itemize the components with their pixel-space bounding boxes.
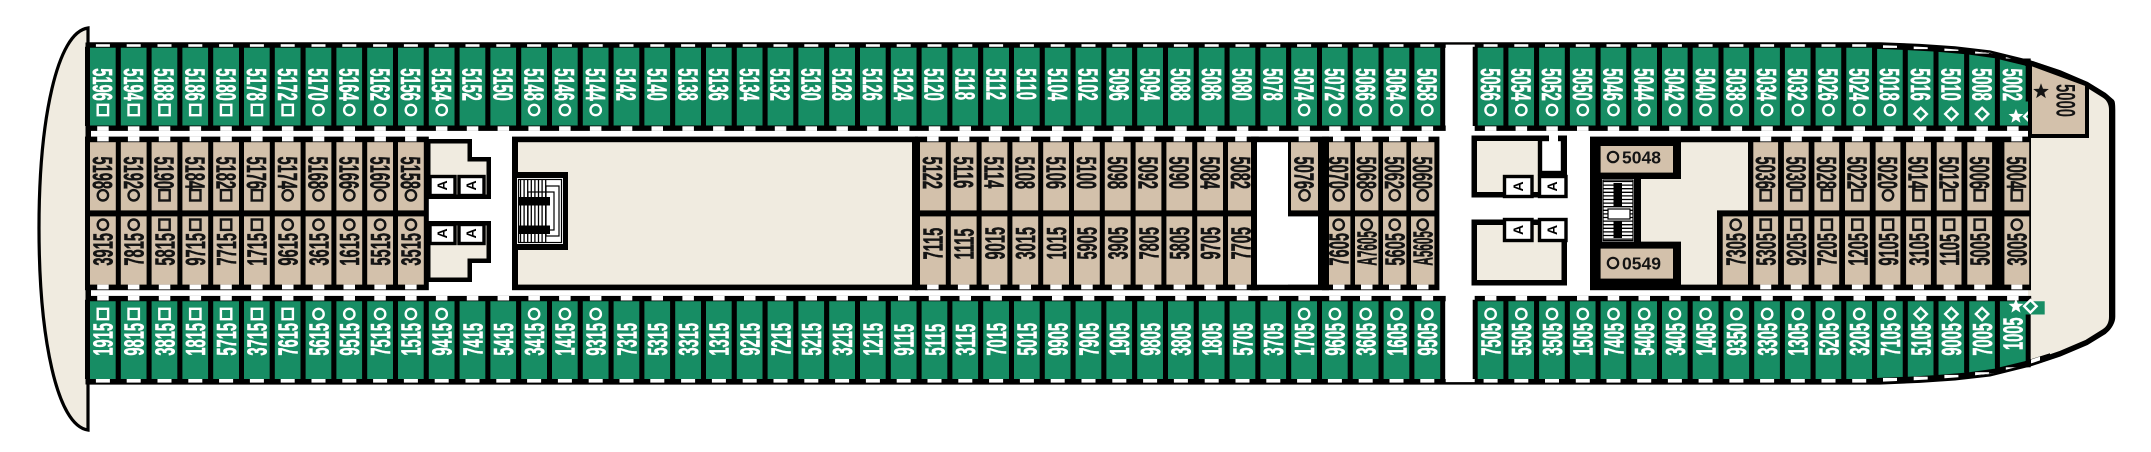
svg-text:3015: 3015 [1010, 227, 1041, 260]
svg-text:9815: 9815 [119, 323, 150, 356]
svg-text:5188: 5188 [148, 68, 179, 101]
svg-text:5160: 5160 [364, 157, 395, 190]
svg-text:5058: 5058 [1411, 68, 1442, 101]
svg-text:5126: 5126 [857, 68, 888, 101]
svg-text:1305: 1305 [1783, 323, 1814, 356]
svg-text:5050: 5050 [1567, 68, 1598, 101]
svg-text:3605: 3605 [1351, 323, 1382, 356]
svg-text:5180: 5180 [210, 68, 241, 101]
svg-text:1405: 1405 [1691, 323, 1722, 356]
svg-text:A: A [1544, 181, 1560, 191]
svg-text:5176: 5176 [241, 157, 272, 190]
svg-text:5615: 5615 [303, 323, 334, 356]
svg-text:9505: 9505 [1412, 323, 1443, 356]
svg-text:5130: 5130 [795, 68, 826, 101]
svg-text:1815: 1815 [180, 323, 211, 356]
svg-text:9715: 9715 [180, 233, 211, 266]
svg-text:5090: 5090 [1163, 157, 1194, 190]
svg-text:5182: 5182 [210, 157, 241, 190]
svg-text:5092: 5092 [1132, 157, 1163, 190]
svg-text:9705: 9705 [1195, 227, 1226, 260]
svg-text:5100: 5100 [1071, 157, 1102, 190]
svg-text:0549: 0549 [1622, 254, 1661, 274]
svg-text:5024: 5024 [1843, 68, 1874, 101]
svg-text:5146: 5146 [549, 68, 580, 101]
svg-text:5010: 5010 [1935, 68, 1966, 101]
svg-text:5178: 5178 [241, 68, 272, 101]
svg-text:5088: 5088 [1165, 68, 1196, 101]
svg-text:7005: 7005 [1967, 323, 1998, 356]
svg-text:5190: 5190 [148, 157, 179, 190]
svg-text:3305: 3305 [1752, 323, 1783, 356]
svg-text:1205: 1205 [1842, 233, 1873, 266]
svg-text:7805: 7805 [1133, 227, 1164, 260]
svg-text:3515: 3515 [396, 233, 427, 266]
svg-text:5078: 5078 [1257, 68, 1288, 101]
svg-text:5096: 5096 [1103, 68, 1134, 101]
svg-text:5138: 5138 [672, 68, 703, 101]
svg-text:5064: 5064 [1380, 68, 1411, 101]
svg-text:7215: 7215 [765, 323, 796, 356]
svg-text:5006: 5006 [1964, 157, 1995, 190]
svg-text:5046: 5046 [1597, 68, 1628, 101]
svg-text:5154: 5154 [426, 68, 457, 101]
svg-text:9415: 9415 [427, 323, 458, 356]
svg-text:5020: 5020 [1872, 157, 1903, 190]
svg-text:5162: 5162 [364, 68, 395, 101]
svg-text:9105: 9105 [1873, 233, 1904, 266]
svg-text:5106: 5106 [1040, 157, 1071, 190]
svg-text:5054: 5054 [1505, 68, 1536, 101]
svg-text:5152: 5152 [456, 68, 487, 101]
svg-text:1805: 1805 [1197, 323, 1228, 356]
svg-text:3715: 3715 [242, 323, 273, 356]
svg-text:5174: 5174 [272, 157, 303, 190]
svg-text:1705: 1705 [1289, 323, 1320, 356]
svg-text:9905: 9905 [1043, 323, 1074, 356]
svg-text:5115: 5115 [919, 324, 950, 356]
svg-text:A: A [434, 180, 450, 190]
svg-text:5004: 5004 [2001, 157, 2032, 190]
svg-text:5166: 5166 [333, 157, 364, 190]
svg-text:5044: 5044 [1628, 68, 1659, 101]
svg-text:7205: 7205 [1812, 233, 1843, 266]
svg-text:A7605: A7605 [1353, 231, 1383, 266]
svg-text:5156: 5156 [395, 68, 426, 101]
svg-text:5405: 5405 [1629, 323, 1660, 356]
svg-text:3005: 3005 [2002, 233, 2033, 266]
svg-text:9805: 9805 [1135, 323, 1166, 356]
svg-text:5028: 5028 [1811, 157, 1842, 190]
svg-text:5034: 5034 [1751, 68, 1782, 101]
svg-text:5140: 5140 [641, 68, 672, 101]
svg-text:1315: 1315 [704, 323, 735, 356]
svg-text:9205: 9205 [1781, 233, 1812, 266]
svg-text:5120: 5120 [918, 68, 949, 101]
svg-text:5066: 5066 [1350, 68, 1381, 101]
svg-text:5060: 5060 [1407, 157, 1438, 190]
svg-text:5186: 5186 [179, 68, 210, 101]
svg-text:9605: 9605 [1320, 323, 1351, 356]
svg-text:5042: 5042 [1659, 68, 1690, 101]
svg-text:A: A [1544, 225, 1560, 235]
svg-text:5158: 5158 [395, 157, 426, 190]
svg-text:3105: 3105 [1903, 233, 1934, 266]
svg-text:3805: 3805 [1166, 323, 1197, 356]
svg-text:5122: 5122 [917, 157, 948, 190]
svg-text:5005: 5005 [1965, 233, 1996, 266]
svg-text:3505: 3505 [1537, 323, 1568, 356]
svg-text:5108: 5108 [1009, 157, 1040, 190]
svg-text:5018: 5018 [1874, 68, 1905, 101]
svg-text:5196: 5196 [87, 68, 118, 101]
svg-text:5715: 5715 [211, 323, 242, 356]
svg-text:5104: 5104 [1042, 68, 1073, 101]
svg-text:7815: 7815 [119, 233, 150, 266]
svg-text:3905: 3905 [1103, 227, 1134, 260]
svg-text:5144: 5144 [580, 68, 611, 101]
svg-text:5705: 5705 [1227, 323, 1258, 356]
svg-text:5036: 5036 [1750, 157, 1781, 190]
svg-text:5164: 5164 [333, 68, 364, 101]
svg-text:3315: 3315 [673, 323, 704, 356]
svg-text:7615: 7615 [273, 323, 304, 356]
svg-text:5072: 5072 [1319, 68, 1350, 101]
svg-text:5305: 5305 [1751, 233, 1782, 266]
svg-text:5086: 5086 [1196, 68, 1227, 101]
svg-text:3705: 3705 [1258, 323, 1289, 356]
svg-text:1715: 1715 [242, 233, 273, 266]
svg-text:5068: 5068 [1351, 157, 1382, 190]
svg-text:5105: 5105 [1906, 323, 1937, 356]
svg-text:A: A [434, 228, 450, 238]
svg-text:7715: 7715 [211, 233, 242, 266]
svg-text:5148: 5148 [518, 68, 549, 101]
svg-text:5048: 5048 [1622, 148, 1661, 168]
svg-text:5030: 5030 [1780, 157, 1811, 190]
svg-text:3115: 3115 [950, 324, 981, 356]
svg-text:3205: 3205 [1844, 323, 1875, 356]
svg-text:5084: 5084 [1194, 157, 1225, 190]
svg-text:1615: 1615 [334, 233, 365, 266]
svg-text:7305: 7305 [1721, 233, 1752, 266]
svg-text:5052: 5052 [1536, 68, 1567, 101]
svg-text:5505: 5505 [1506, 323, 1537, 356]
svg-text:A: A [1510, 225, 1526, 235]
svg-text:5000: 5000 [2050, 84, 2081, 117]
svg-text:5080: 5080 [1226, 68, 1257, 101]
svg-text:9350: 9350 [1721, 323, 1752, 356]
svg-text:7015: 7015 [981, 323, 1012, 356]
svg-text:5062: 5062 [1379, 157, 1410, 190]
svg-text:5132: 5132 [764, 68, 795, 101]
svg-text:5124: 5124 [888, 68, 919, 101]
svg-text:3915: 3915 [88, 233, 119, 266]
svg-text:5515: 5515 [365, 233, 396, 266]
svg-text:5415: 5415 [488, 323, 519, 356]
svg-text:9615: 9615 [273, 233, 304, 266]
svg-text:3405: 3405 [1660, 323, 1691, 356]
svg-text:5102: 5102 [1072, 68, 1103, 101]
svg-text:1105: 1105 [1934, 234, 1965, 266]
svg-text:5605: 5605 [1380, 233, 1411, 266]
svg-text:5014: 5014 [1902, 157, 1933, 190]
svg-text:5815: 5815 [149, 233, 180, 266]
svg-text:5170: 5170 [302, 68, 333, 101]
svg-text:5015: 5015 [1012, 323, 1043, 356]
svg-text:5184: 5184 [179, 157, 210, 190]
svg-text:A: A [1510, 181, 1526, 191]
svg-text:5205: 5205 [1813, 323, 1844, 356]
svg-text:3815: 3815 [149, 323, 180, 356]
svg-text:9005: 9005 [1936, 323, 1967, 356]
svg-text:5098: 5098 [1102, 157, 1133, 190]
svg-text:1005: 1005 [1998, 317, 2029, 350]
svg-text:3415: 3415 [519, 323, 550, 356]
svg-text:5076: 5076 [1288, 157, 1319, 190]
svg-text:5012: 5012 [1933, 157, 1964, 190]
svg-text:5022: 5022 [1841, 157, 1872, 190]
svg-text:9115: 9115 [889, 324, 920, 356]
svg-text:A5605: A5605 [1409, 231, 1439, 266]
svg-text:5032: 5032 [1782, 68, 1813, 101]
svg-text:1905: 1905 [1104, 323, 1135, 356]
svg-text:5016: 5016 [1905, 68, 1936, 101]
svg-text:5805: 5805 [1164, 227, 1195, 260]
svg-text:5056: 5056 [1475, 68, 1506, 101]
svg-text:5008: 5008 [1966, 68, 1997, 101]
svg-text:5172: 5172 [272, 68, 303, 101]
svg-text:1415: 1415 [550, 323, 581, 356]
svg-text:5002: 5002 [1997, 69, 2028, 102]
svg-text:5150: 5150 [487, 68, 518, 101]
svg-text:3615: 3615 [303, 233, 334, 266]
svg-text:5074: 5074 [1288, 68, 1319, 101]
svg-text:5142: 5142 [610, 68, 641, 101]
svg-text:A: A [463, 180, 479, 190]
svg-text:5198: 5198 [87, 157, 118, 190]
svg-text:5026: 5026 [1812, 68, 1843, 101]
svg-text:1115: 1115 [949, 229, 980, 260]
svg-text:7515: 7515 [365, 323, 396, 356]
svg-text:5215: 5215 [796, 323, 827, 356]
svg-text:5114: 5114 [978, 157, 1009, 189]
svg-text:3215: 3215 [827, 323, 858, 356]
svg-text:7505: 7505 [1475, 323, 1506, 356]
svg-text:9215: 9215 [735, 323, 766, 356]
svg-text:1215: 1215 [858, 323, 889, 356]
svg-text:5110: 5110 [1011, 68, 1042, 100]
svg-text:7415: 7415 [457, 323, 488, 356]
svg-text:1505: 1505 [1568, 323, 1599, 356]
svg-text:7115: 7115 [918, 228, 949, 260]
svg-text:5194: 5194 [118, 68, 149, 101]
svg-text:9015: 9015 [979, 227, 1010, 260]
svg-text:5094: 5094 [1134, 68, 1165, 101]
svg-text:5118: 5118 [949, 68, 980, 100]
svg-text:5038: 5038 [1720, 68, 1751, 101]
svg-text:1015: 1015 [1041, 227, 1072, 260]
svg-text:5192: 5192 [118, 157, 149, 190]
svg-text:5136: 5136 [703, 68, 734, 101]
svg-text:5112: 5112 [980, 68, 1011, 100]
svg-text:7905: 7905 [1073, 323, 1104, 356]
svg-text:1605: 1605 [1381, 323, 1412, 356]
svg-text:5116: 5116 [948, 157, 979, 189]
svg-text:7405: 7405 [1598, 323, 1629, 356]
svg-text:5134: 5134 [734, 68, 765, 101]
svg-text:5905: 5905 [1072, 227, 1103, 260]
svg-text:5040: 5040 [1690, 68, 1721, 101]
svg-text:5315: 5315 [642, 323, 673, 356]
svg-text:9515: 9515 [334, 323, 365, 356]
svg-text:1915: 1915 [88, 323, 119, 356]
svg-text:5168: 5168 [302, 157, 333, 190]
svg-text:9315: 9315 [581, 323, 612, 356]
svg-text:7315: 7315 [611, 323, 642, 356]
svg-text:1515: 1515 [396, 323, 427, 356]
svg-text:5128: 5128 [826, 68, 857, 101]
svg-text:7105: 7105 [1875, 323, 1906, 356]
svg-text:A: A [463, 228, 479, 238]
